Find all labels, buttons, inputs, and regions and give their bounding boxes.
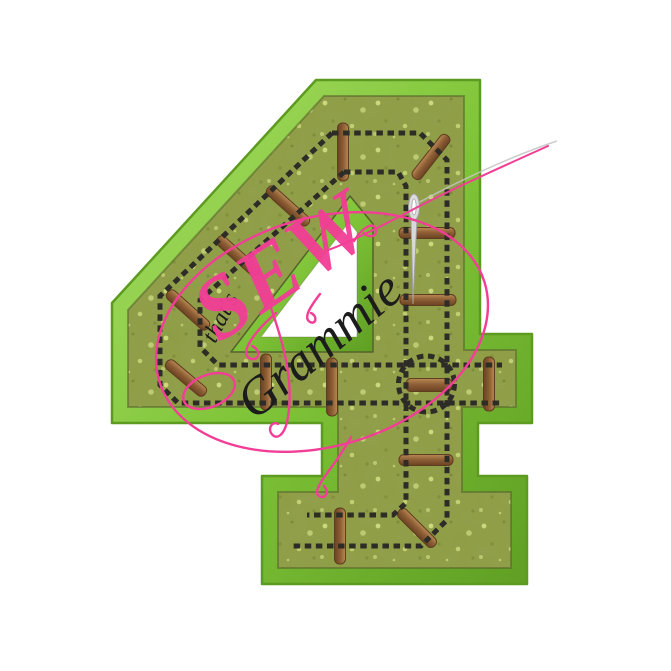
applique-canvas: that's SEW Grammie	[0, 0, 671, 671]
needle-eye-inner	[412, 199, 416, 215]
product-image: that's SEW Grammie	[0, 0, 671, 671]
